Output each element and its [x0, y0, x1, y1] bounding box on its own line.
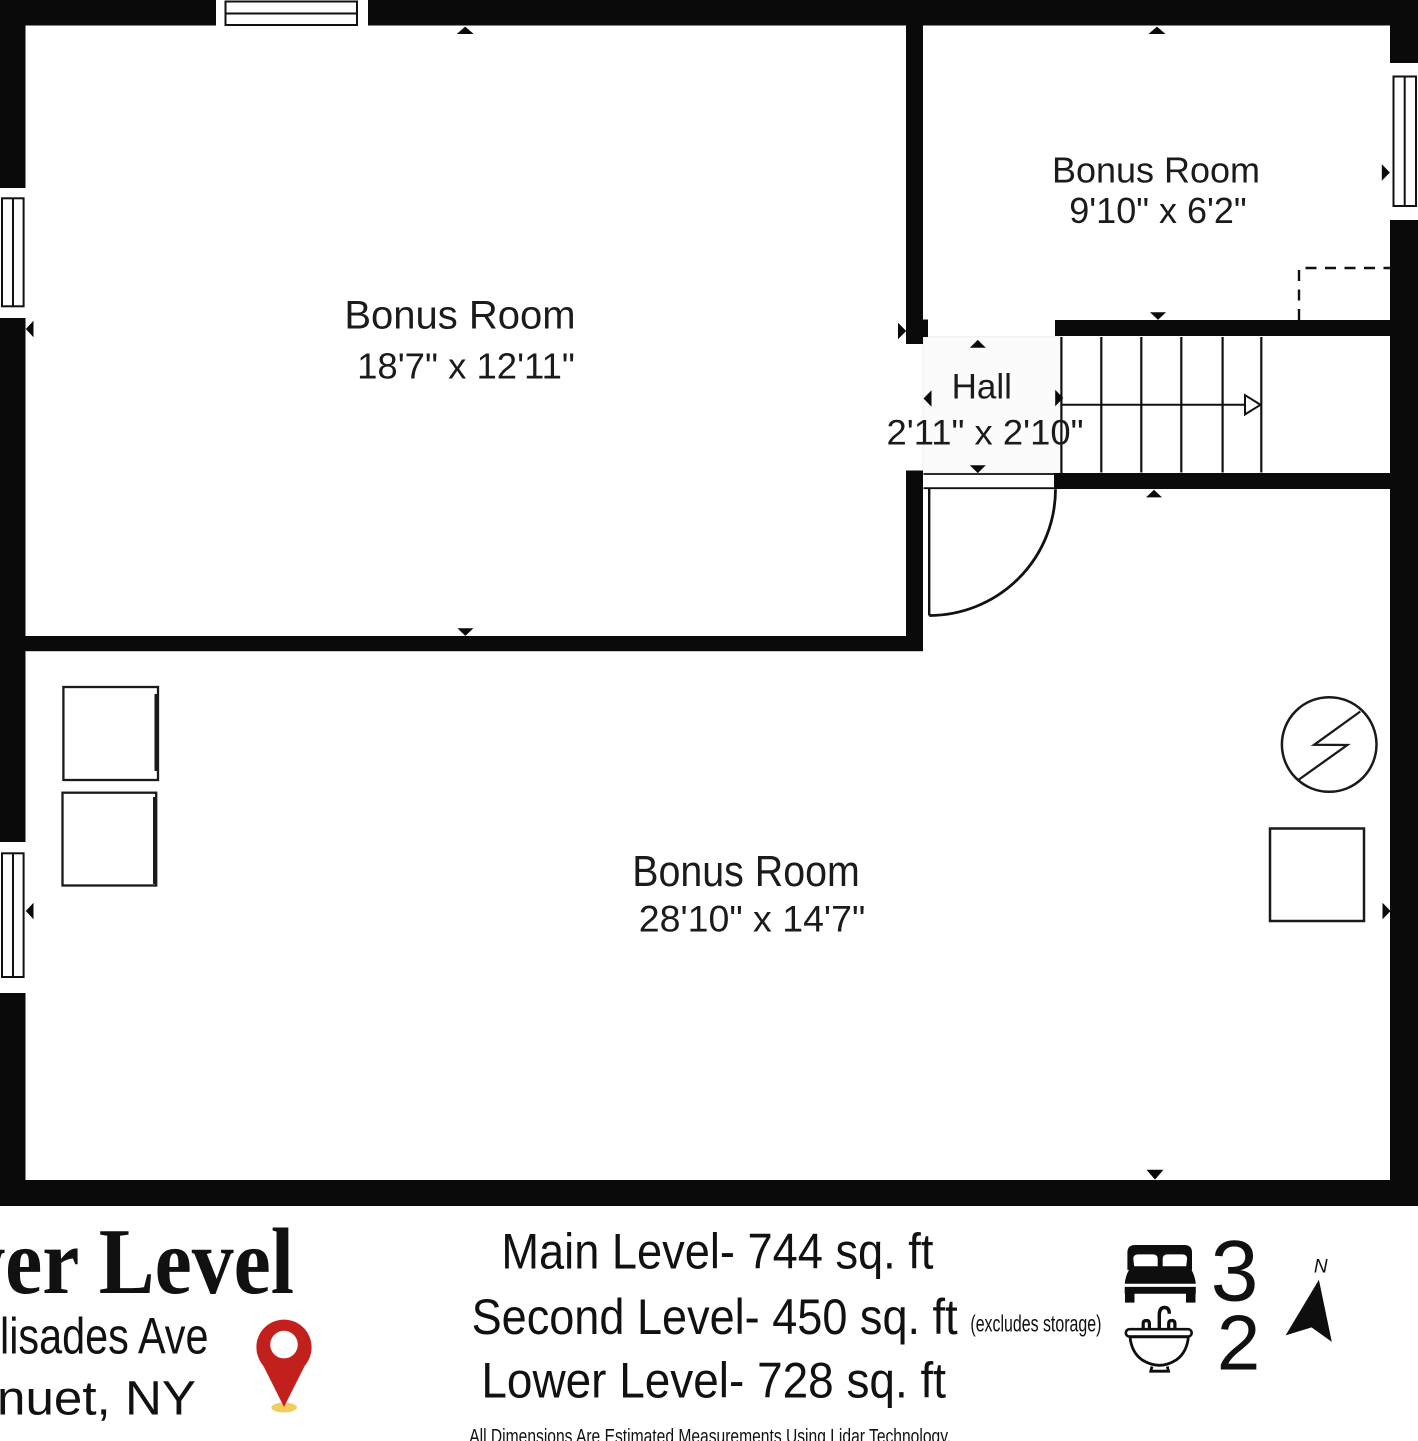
svg-text:2'11" x 2'10": 2'11" x 2'10"	[887, 414, 1084, 453]
svg-text:(excludes storage): (excludes storage)	[970, 1311, 1101, 1337]
svg-text:Lower Level: Lower Level	[0, 1210, 294, 1314]
svg-text:Lower Level- 728 sq. ft: Lower Level- 728 sq. ft	[481, 1352, 946, 1408]
svg-text:Second Level- 450 sq. ft: Second Level- 450 sq. ft	[472, 1289, 958, 1345]
svg-text:alisades Ave: alisades Ave	[0, 1308, 209, 1365]
svg-text:18'7" x 12'11": 18'7" x 12'11"	[357, 345, 575, 386]
svg-text:28'10" x 14'7": 28'10" x 14'7"	[639, 898, 866, 940]
svg-text:nuet, NY: nuet, NY	[0, 1371, 196, 1425]
svg-text:Bonus Room: Bonus Room	[1052, 149, 1260, 190]
svg-text:All Dimensions Are Estimated M: All Dimensions Are Estimated Measurement…	[469, 1426, 951, 1441]
svg-text:2: 2	[1217, 1298, 1260, 1386]
svg-text:9'10" x 6'2": 9'10" x 6'2"	[1069, 190, 1246, 231]
svg-text:Bonus Room: Bonus Room	[632, 848, 860, 896]
svg-text:Bonus Room: Bonus Room	[344, 294, 575, 338]
svg-text:N: N	[1314, 1257, 1328, 1278]
svg-text:Hall: Hall	[952, 368, 1012, 407]
svg-text:Main Level- 744 sq. ft: Main Level- 744 sq. ft	[501, 1223, 933, 1279]
